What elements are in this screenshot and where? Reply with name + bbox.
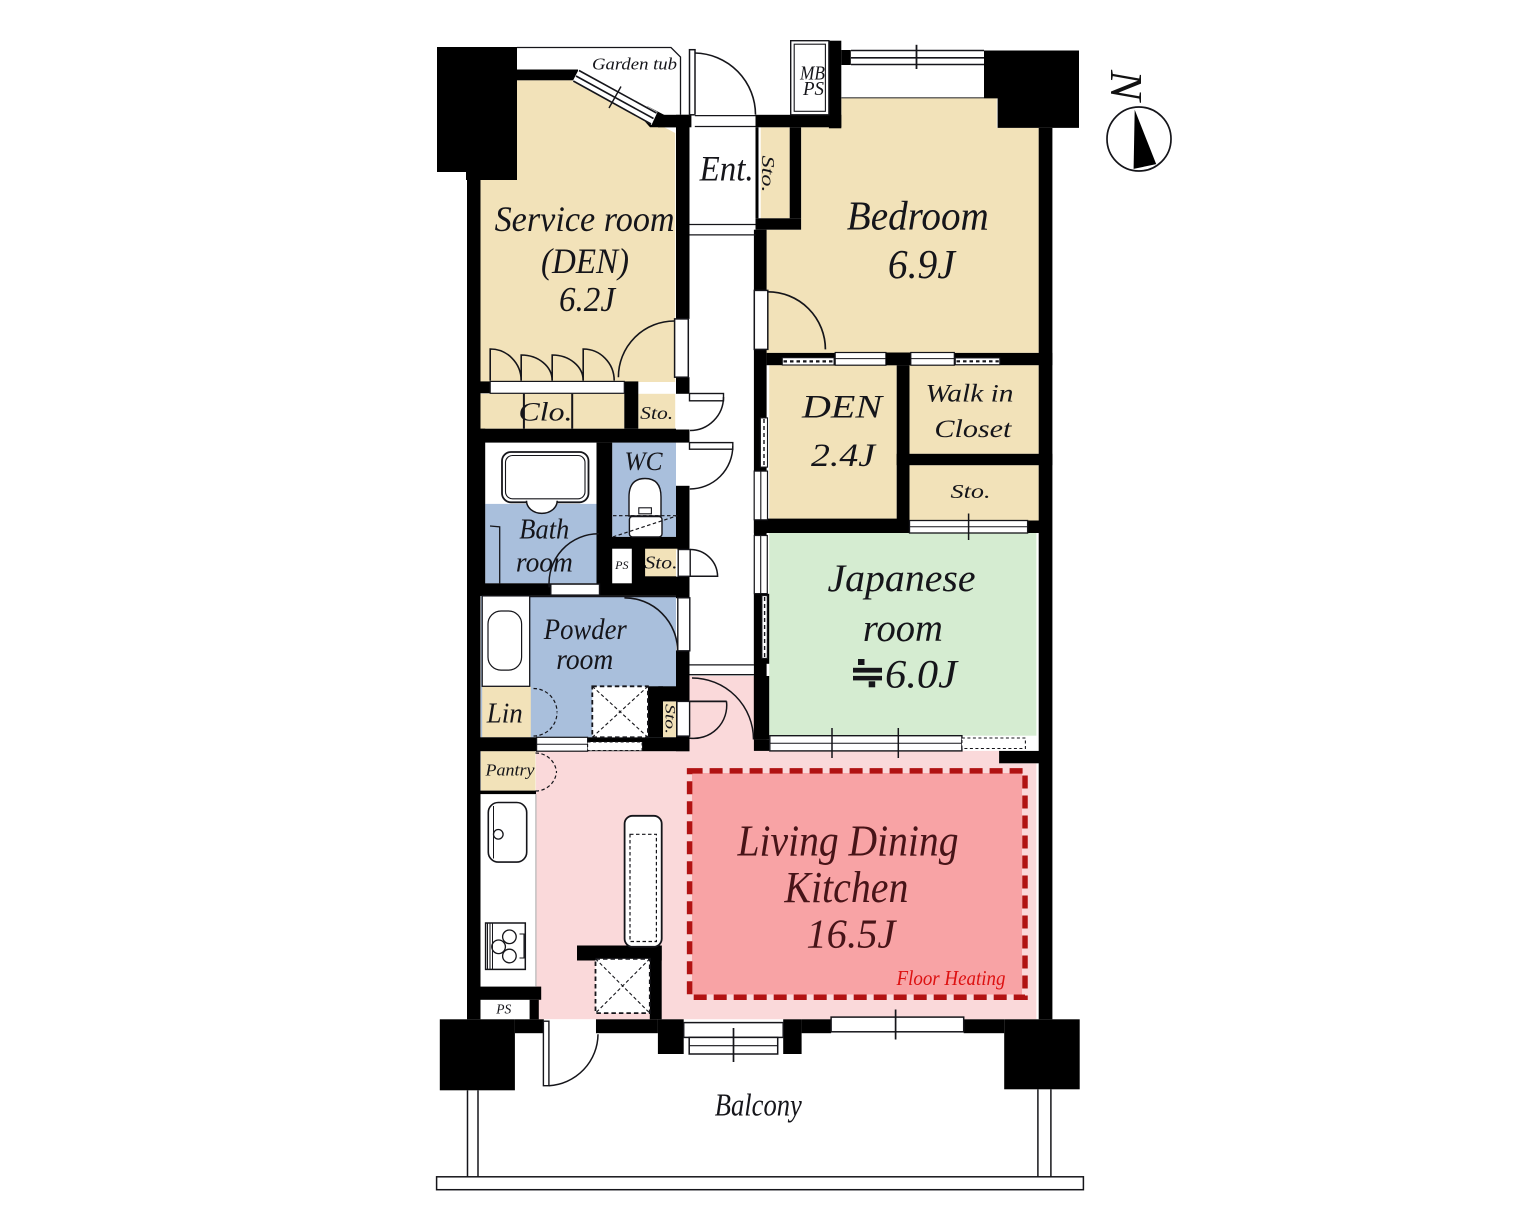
svg-text:Sto.: Sto. <box>951 481 991 503</box>
svg-text:Living Dining: Living Dining <box>737 816 959 865</box>
svg-text:Pantry: Pantry <box>484 761 535 780</box>
svg-text:6.0J: 6.0J <box>885 652 959 697</box>
svg-text:6.9J: 6.9J <box>888 241 957 287</box>
svg-text:Ent.: Ent. <box>699 148 754 188</box>
svg-text:N: N <box>1101 69 1152 103</box>
svg-text:2.4J: 2.4J <box>811 438 877 474</box>
svg-text:room: room <box>516 547 573 579</box>
svg-text:PS: PS <box>802 78 824 100</box>
svg-text:Service room: Service room <box>495 199 675 239</box>
svg-text:Kitchen: Kitchen <box>783 863 908 912</box>
svg-text:Sto.: Sto. <box>640 403 673 423</box>
svg-text:Balcony: Balcony <box>715 1087 803 1123</box>
svg-text:6.2J: 6.2J <box>559 280 616 319</box>
svg-text:room: room <box>556 643 613 676</box>
svg-text:Clo.: Clo. <box>519 398 573 427</box>
svg-text:Bath: Bath <box>519 514 569 546</box>
svg-text:Japanese: Japanese <box>828 557 976 600</box>
svg-text:Sto.: Sto. <box>662 704 678 734</box>
svg-text:room: room <box>863 607 943 650</box>
svg-text:Garden tub: Garden tub <box>592 55 677 74</box>
svg-text:WC: WC <box>625 447 664 476</box>
svg-text:PS: PS <box>495 1002 511 1017</box>
svg-text:(DEN): (DEN) <box>541 241 629 281</box>
svg-text:Bedroom: Bedroom <box>847 193 989 239</box>
svg-text:Floor Heating: Floor Heating <box>896 966 1006 990</box>
svg-text:Sto.: Sto. <box>758 156 778 193</box>
svg-text:PS: PS <box>614 558 628 572</box>
svg-text:Walk in: Walk in <box>926 380 1014 407</box>
svg-text:Powder: Powder <box>543 613 627 646</box>
svg-text:Lin: Lin <box>486 699 523 730</box>
svg-text:Closet: Closet <box>934 416 1012 443</box>
svg-text:16.5J: 16.5J <box>806 910 897 956</box>
svg-text:Sto.: Sto. <box>645 553 678 573</box>
svg-text:DEN: DEN <box>801 390 885 426</box>
